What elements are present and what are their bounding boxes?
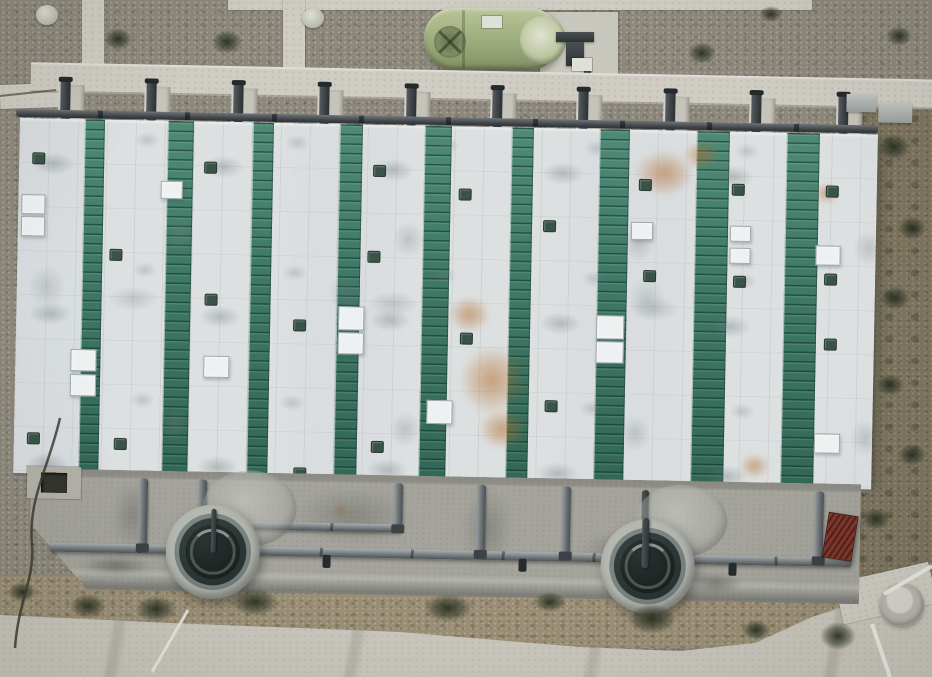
shrub	[8, 582, 36, 602]
shrub	[876, 374, 904, 396]
shrub	[424, 594, 472, 622]
shrub	[688, 42, 716, 64]
shrub-layer	[0, 0, 932, 677]
shrub	[898, 216, 926, 240]
shrub	[70, 594, 106, 618]
shrub	[136, 596, 176, 622]
shrub	[628, 604, 676, 634]
shrub	[232, 588, 278, 616]
shrub	[212, 30, 242, 54]
shrub	[886, 26, 912, 46]
shrub	[534, 592, 566, 612]
shrub	[898, 444, 926, 466]
shrub	[862, 508, 890, 530]
shrub	[104, 28, 132, 50]
shrub	[878, 134, 910, 160]
shrub	[742, 620, 770, 640]
aerial-photo	[0, 0, 932, 677]
shrub	[880, 286, 910, 310]
shrub	[820, 622, 856, 650]
shrub	[760, 6, 782, 22]
